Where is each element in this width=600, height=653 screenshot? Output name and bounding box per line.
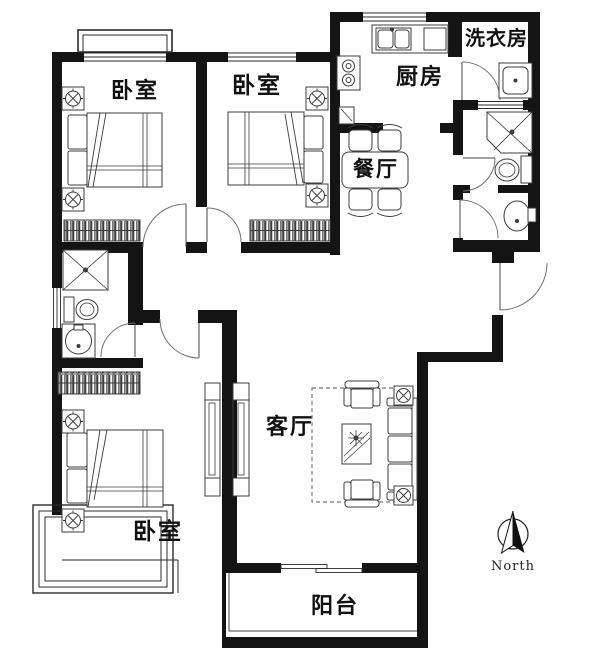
nightstand-icon (62, 87, 84, 110)
kitchen-cabinet-icon (339, 107, 354, 124)
room-label-kitchen: 厨房 (396, 66, 444, 88)
toilet-icon (495, 156, 532, 183)
nightstand-icon (306, 87, 328, 110)
windows (33, 13, 523, 631)
side-table-lamp-icon (394, 386, 413, 405)
bed-icon (67, 430, 163, 507)
bed-icon (68, 113, 162, 187)
bay-window-icon (78, 30, 172, 61)
floorplan: 卧室 卧室 卧室 厨房 洗衣房 餐厅 客厅 阳台 North (0, 0, 600, 653)
door-washroom (460, 200, 498, 238)
floorplan-drawing (0, 0, 600, 653)
washing-machine-icon (499, 63, 532, 98)
door-laundry (462, 62, 500, 100)
side-table-lamp-icon (394, 486, 413, 505)
window-icon (54, 288, 61, 328)
nightstand-icon (62, 188, 84, 211)
room-label-bedroom1: 卧室 (111, 80, 159, 102)
door-bedroom1 (143, 204, 186, 247)
wardrobe-icon (58, 372, 140, 394)
bed-icon (228, 112, 323, 185)
door-bathroom-left (101, 323, 135, 357)
nightstand-icon (306, 184, 328, 207)
wardrobe-icon (64, 220, 140, 241)
wardrobe-icon (250, 220, 330, 241)
nightstand-icon (62, 410, 84, 433)
window-icon (228, 53, 296, 61)
room-label-balcony: 阳台 (311, 595, 359, 617)
room-label-living: 客厅 (266, 416, 314, 438)
coffee-table-icon (342, 424, 371, 464)
door-bedroom3 (160, 319, 199, 358)
walls (52, 12, 540, 648)
room-label-bedroom2: 卧室 (232, 74, 282, 97)
room-label-bedroom3: 卧室 (133, 520, 183, 543)
compass-north-label: North (488, 560, 538, 573)
shower-icon (487, 112, 532, 153)
window-icon (363, 13, 426, 21)
door-bedroom2 (207, 208, 241, 242)
room-label-dining: 餐厅 (353, 159, 399, 180)
tv-cabinet-icon (205, 383, 220, 496)
window-icon (478, 102, 523, 109)
shower-icon (63, 250, 108, 290)
stove-icon (337, 56, 360, 90)
door-entry (500, 263, 547, 310)
toilet-icon (64, 297, 98, 322)
north-compass-icon (498, 511, 528, 553)
sink-icon (62, 324, 95, 358)
kitchen-sink-icon (372, 25, 448, 53)
nightstand-icon (62, 509, 84, 532)
room-label-laundry: 洗衣房 (465, 29, 528, 49)
sliding-door-icon (281, 565, 362, 573)
